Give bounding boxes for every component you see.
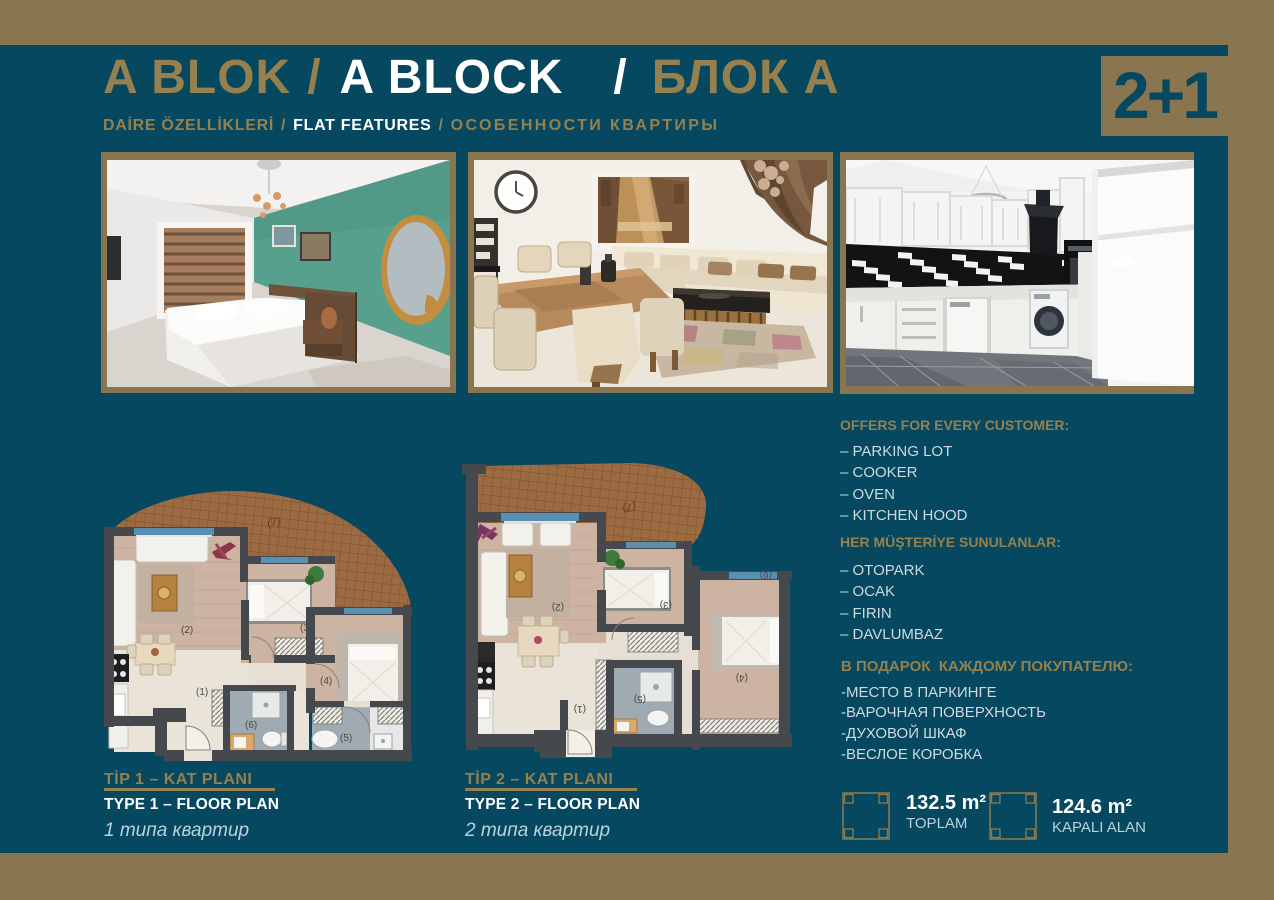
svg-text:(6): (6): [760, 569, 772, 580]
svg-text:(4): (4): [736, 672, 748, 683]
svg-text:(2): (2): [552, 601, 564, 612]
svg-text:(3): (3): [300, 623, 312, 634]
svg-text:(2): (2): [181, 625, 193, 636]
svg-text:(5): (5): [340, 733, 352, 744]
svg-text:(3): (3): [660, 599, 672, 610]
svg-text:(4): (4): [320, 676, 332, 687]
svg-text:(6): (6): [245, 720, 257, 731]
svg-text:(1): (1): [574, 703, 586, 714]
svg-text:(5): (5): [634, 693, 646, 704]
svg-text:(1): (1): [196, 687, 208, 698]
